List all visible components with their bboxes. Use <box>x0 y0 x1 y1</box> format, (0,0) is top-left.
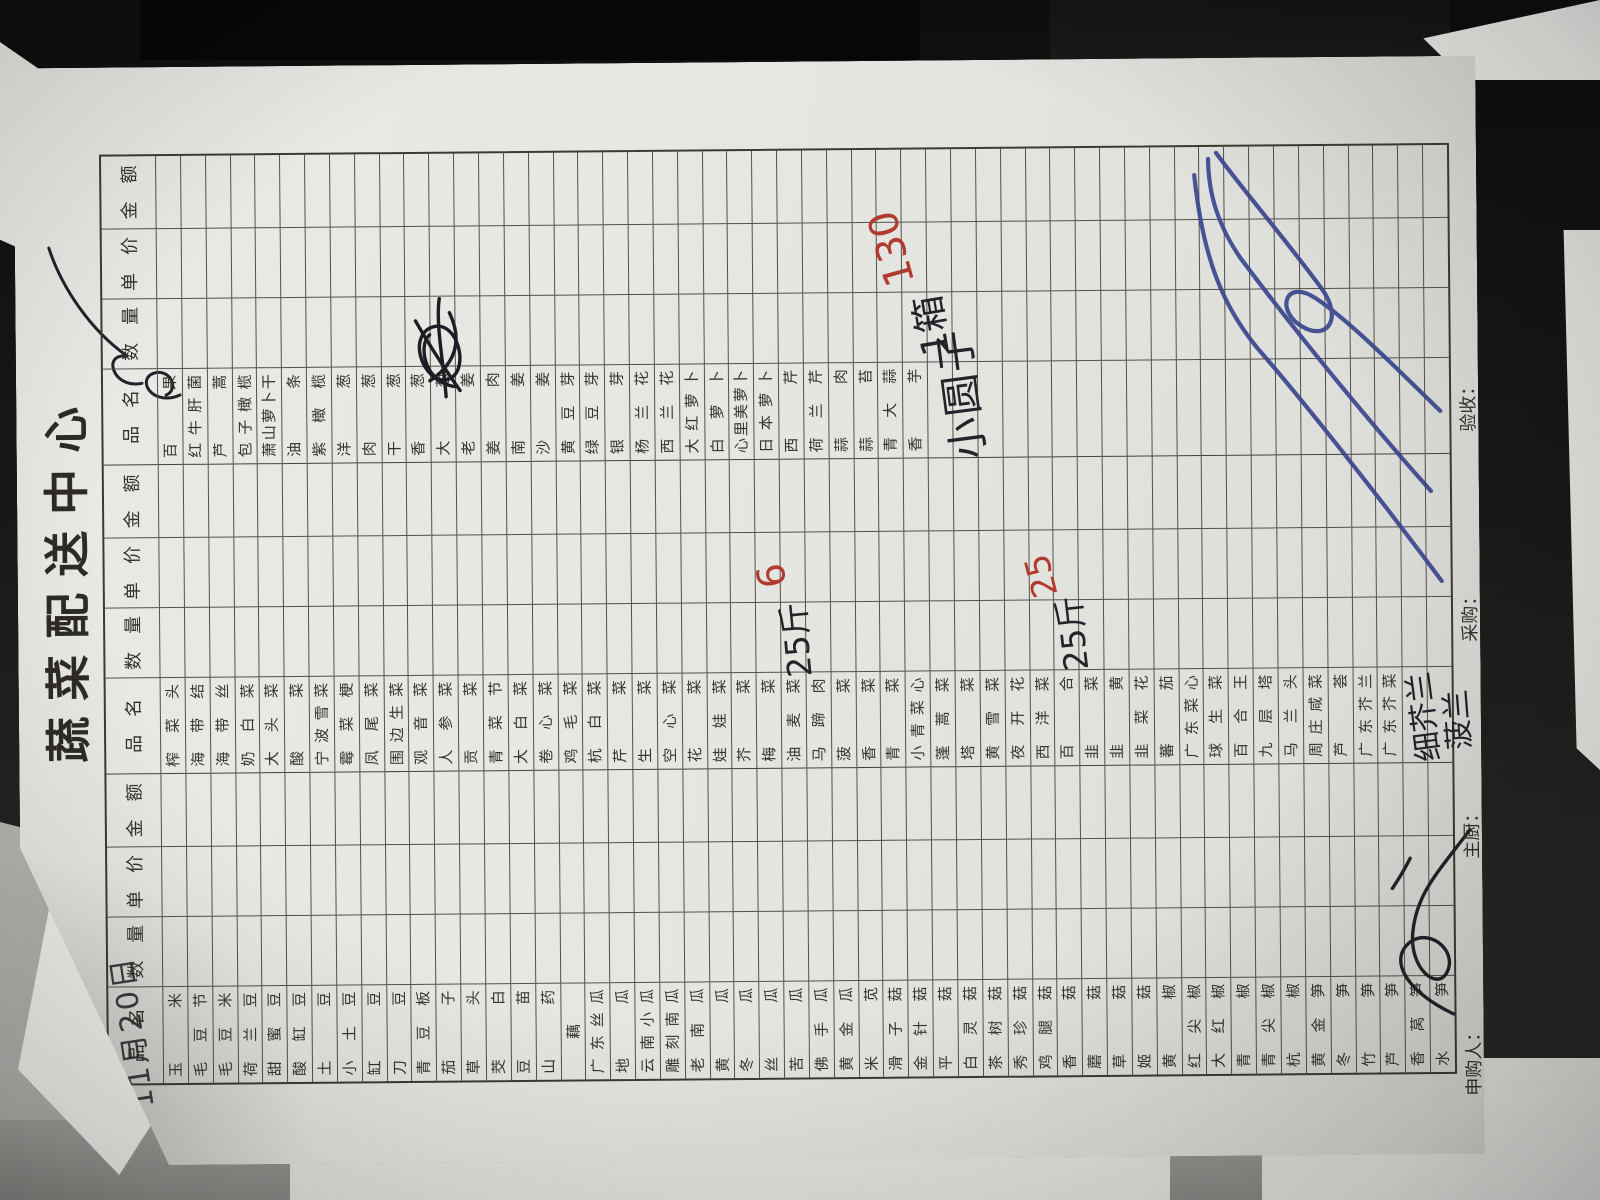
empty-value-cell <box>260 846 285 916</box>
column-header: 品 名 <box>106 678 161 774</box>
empty-value-cell <box>708 912 733 982</box>
empty-value-cell <box>608 770 633 843</box>
item-name-cell: 蓬蒿菜 <box>930 671 956 767</box>
empty-value-cell <box>554 295 579 365</box>
empty-value-cell <box>232 464 257 537</box>
paper-scrap <box>1548 230 1600 770</box>
item-name-cell: 肉葱 <box>356 367 382 463</box>
empty-value-cell <box>260 773 285 846</box>
empty-value-cell <box>678 294 703 364</box>
empty-value-cell <box>158 538 183 608</box>
empty-value-cell <box>385 915 410 985</box>
item-name-cell: 鸡腿菇 <box>1032 979 1058 1075</box>
empty-value-cell <box>359 772 384 845</box>
empty-value-cell <box>406 463 431 536</box>
empty-value-cell <box>659 913 684 983</box>
background-object <box>140 0 920 60</box>
empty-value-cell <box>925 149 950 222</box>
empty-value-cell <box>428 154 453 227</box>
empty-value-cell <box>257 464 282 537</box>
empty-value-cell <box>385 845 410 915</box>
item-name-cell: 大白菜 <box>507 675 533 771</box>
empty-value-cell <box>802 293 827 363</box>
empty-value-cell <box>553 225 578 295</box>
item-name-cell: 油条 <box>281 368 307 464</box>
item-name-cell: 杭白菜 <box>582 674 608 770</box>
empty-value-cell <box>556 604 581 674</box>
empty-value-cell <box>307 537 332 607</box>
item-name-cell: 青尖椒 <box>1255 977 1281 1073</box>
empty-value-cell <box>355 297 380 367</box>
column-header: 单 价 <box>104 538 159 608</box>
empty-value-cell <box>255 228 280 298</box>
empty-value-cell <box>210 773 235 846</box>
empty-value-cell <box>1025 148 1050 221</box>
item-name-cell: 雕刻南瓜 <box>659 983 685 1079</box>
empty-value-cell <box>581 604 606 674</box>
empty-value-cell <box>634 913 659 983</box>
empty-value-cell <box>280 228 305 298</box>
empty-value-cell <box>1127 529 1152 599</box>
item-name-cell: 菠菜 <box>830 672 856 768</box>
empty-value-cell <box>330 297 355 367</box>
item-name-cell: 九层塔 <box>1253 668 1279 764</box>
item-name-cell: 滑子菇 <box>883 981 909 1077</box>
item-name-cell: 冬瓜 <box>734 982 760 1078</box>
empty-value-cell <box>282 464 307 537</box>
empty-value-cell <box>432 606 457 676</box>
empty-value-cell <box>907 910 932 980</box>
empty-value-cell <box>627 152 652 225</box>
empty-value-cell <box>160 774 185 847</box>
empty-value-cell <box>807 841 832 911</box>
item-name-cell: 小青菜心 <box>905 671 931 767</box>
empty-name-cell <box>1101 361 1127 457</box>
item-name-cell: 藕 <box>560 983 586 1079</box>
item-name-cell: 贡菜 <box>458 675 484 771</box>
empty-value-cell <box>1179 765 1204 838</box>
empty-value-cell <box>305 228 330 298</box>
item-name-cell: 芥菜 <box>731 673 757 769</box>
handwritten-extra-qty: 1箱 <box>897 292 960 361</box>
empty-value-cell <box>559 843 584 913</box>
item-name-cell: 花菜 <box>681 673 707 769</box>
item-name-cell: 黄金瓜 <box>833 981 859 1077</box>
item-name-cell: 大红椒 <box>1206 978 1232 1074</box>
empty-value-cell <box>159 608 184 678</box>
empty-value-cell <box>954 601 979 671</box>
empty-value-cell <box>1125 290 1150 360</box>
empty-value-cell <box>304 155 329 228</box>
empty-value-cell <box>155 156 180 229</box>
item-name-cell: 人参菜 <box>433 676 459 772</box>
empty-value-cell <box>981 840 1006 910</box>
item-name-cell: 平菇 <box>932 980 958 1076</box>
empty-value-cell <box>258 537 283 607</box>
empty-value-cell <box>206 299 231 369</box>
item-name-cell: 空心菜 <box>656 674 682 770</box>
empty-value-cell <box>702 151 727 224</box>
empty-value-cell <box>261 916 286 986</box>
empty-value-cell <box>1102 530 1127 600</box>
empty-value-cell <box>236 916 261 986</box>
empty-value-cell <box>457 605 482 675</box>
empty-value-cell <box>435 915 460 985</box>
empty-value-cell <box>1329 907 1354 977</box>
empty-value-cell <box>1152 529 1177 599</box>
empty-value-cell <box>357 536 382 606</box>
empty-value-cell <box>603 225 628 295</box>
empty-value-cell <box>335 845 360 915</box>
empty-value-cell <box>577 152 602 225</box>
empty-value-cell <box>434 772 459 845</box>
item-name-cell: 红尖椒 <box>1181 978 1207 1074</box>
item-name-cell: 土豆 <box>311 986 337 1082</box>
empty-value-cell <box>1278 764 1303 837</box>
empty-value-cell <box>330 227 355 297</box>
empty-value-cell <box>1280 907 1305 977</box>
item-name-cell: 日本萝卜 <box>753 364 779 460</box>
empty-value-cell <box>1303 764 1328 837</box>
empty-value-cell <box>932 910 957 980</box>
empty-value-cell <box>777 294 802 364</box>
empty-value-cell <box>431 463 456 536</box>
empty-value-cell <box>506 535 531 605</box>
empty-value-cell <box>631 604 656 674</box>
handwritten-qty-2: 25斤 <box>1042 594 1098 674</box>
empty-value-cell <box>235 773 260 846</box>
item-name-cell: 凤尾菜 <box>358 676 384 772</box>
empty-value-cell <box>379 154 404 227</box>
empty-value-cell <box>1151 456 1176 529</box>
empty-value-cell <box>382 536 407 606</box>
item-name-cell: 韭黄 <box>1104 670 1130 766</box>
empty-value-cell <box>1027 457 1052 530</box>
item-name-cell: 芦蒿 <box>207 369 233 465</box>
empty-value-cell <box>1006 840 1031 910</box>
item-name-cell: 南姜 <box>505 366 531 462</box>
item-name-cell: 缸豆 <box>361 985 387 1081</box>
item-name-cell: 地瓜 <box>609 983 635 1079</box>
empty-value-cell <box>578 225 603 295</box>
empty-value-cell <box>978 458 1003 531</box>
empty-value-cell <box>855 602 880 672</box>
item-name-cell: 黄豆芽 <box>554 365 580 461</box>
item-name-cell: 米苋 <box>858 981 884 1077</box>
empty-value-cell <box>609 913 634 983</box>
empty-value-cell <box>931 840 956 910</box>
empty-value-cell <box>286 916 311 986</box>
empty-name-cell <box>1026 361 1052 457</box>
empty-value-cell <box>1180 838 1205 908</box>
item-name-cell: 马兰头 <box>1277 668 1303 764</box>
empty-value-cell <box>854 532 879 602</box>
empty-value-cell <box>801 150 826 223</box>
footer-label-chef: 主厨： <box>1458 805 1484 859</box>
empty-value-cell <box>559 913 584 983</box>
empty-value-cell <box>231 298 256 368</box>
empty-value-cell <box>831 768 856 841</box>
column-header: 数 量 <box>108 917 163 987</box>
empty-value-cell <box>409 845 434 915</box>
empty-value-cell <box>652 152 677 225</box>
empty-value-cell <box>978 531 1003 601</box>
empty-value-cell <box>479 296 504 366</box>
item-name-cell: 苦瓜 <box>783 981 809 1077</box>
empty-value-cell <box>185 774 210 847</box>
empty-value-cell <box>456 535 481 605</box>
empty-value-cell <box>1230 908 1255 978</box>
empty-value-cell <box>184 608 209 678</box>
item-name-cell: 青豆板 <box>411 985 437 1081</box>
item-name-cell: 奶白菜 <box>234 677 260 773</box>
empty-value-cell <box>752 294 777 364</box>
empty-value-cell <box>681 603 706 673</box>
item-name-cell: 杭椒 <box>1280 977 1306 1073</box>
empty-value-cell <box>705 533 730 603</box>
empty-value-cell <box>1030 766 1055 839</box>
empty-value-cell <box>233 537 258 607</box>
empty-value-cell <box>181 299 206 369</box>
item-name-cell: 黄金笋 <box>1305 977 1331 1073</box>
footer-label-receiver: 验收： <box>1454 378 1480 432</box>
empty-value-cell <box>356 463 381 536</box>
empty-value-cell <box>256 298 281 368</box>
empty-value-cell <box>804 459 829 532</box>
empty-value-cell <box>606 604 631 674</box>
empty-name-cell <box>1151 360 1177 456</box>
empty-value-cell <box>981 910 1006 980</box>
empty-value-cell <box>832 911 857 981</box>
item-name-cell: 酸缸豆 <box>286 986 312 1082</box>
empty-value-cell <box>1000 222 1025 292</box>
empty-value-cell <box>1130 838 1155 908</box>
empty-value-cell <box>633 843 658 913</box>
empty-value-cell <box>1153 599 1178 669</box>
item-name-cell: 心里美萝卜 <box>728 364 754 460</box>
empty-value-cell <box>928 458 953 531</box>
empty-value-cell <box>782 842 807 912</box>
item-name-cell: 百果 <box>157 369 183 465</box>
empty-value-cell <box>509 844 534 914</box>
empty-value-cell <box>879 602 904 672</box>
empty-value-cell <box>726 151 751 224</box>
empty-value-cell <box>580 461 605 534</box>
item-name-cell: 西洋菜 <box>1029 670 1055 766</box>
empty-value-cell <box>881 768 906 841</box>
footer-label-requester: 申购人： <box>1460 1024 1487 1096</box>
empty-value-cell <box>826 223 851 293</box>
empty-value-cell <box>1000 149 1025 222</box>
empty-value-cell <box>1055 766 1080 839</box>
empty-value-cell <box>727 224 752 294</box>
item-name-cell: 西兰花 <box>654 365 680 461</box>
item-name-cell: 韭菜花 <box>1128 669 1154 765</box>
empty-value-cell <box>429 227 454 297</box>
item-name-cell: 广东芥兰 <box>1352 668 1378 764</box>
empty-value-cell <box>307 464 332 537</box>
empty-value-cell <box>1100 221 1125 291</box>
empty-value-cell <box>856 768 881 841</box>
empty-value-cell <box>752 224 777 294</box>
empty-value-cell <box>928 531 953 601</box>
item-name-cell: 香芋 <box>902 362 928 458</box>
empty-value-cell <box>534 844 559 914</box>
empty-value-cell <box>1329 837 1354 907</box>
empty-value-cell <box>979 601 1004 671</box>
empty-value-cell <box>334 772 359 845</box>
item-name-cell: 刀豆 <box>386 985 412 1081</box>
empty-value-cell <box>1155 838 1180 908</box>
empty-value-cell <box>532 605 557 675</box>
empty-value-cell <box>653 295 678 365</box>
empty-value-cell <box>583 770 608 843</box>
item-name-cell: 玉米 <box>162 987 188 1083</box>
item-name-cell: 丝瓜 <box>758 982 784 1078</box>
empty-value-cell <box>285 773 310 846</box>
empty-value-cell <box>956 840 981 910</box>
empty-value-cell <box>332 463 357 536</box>
empty-value-cell <box>857 841 882 911</box>
empty-value-cell <box>906 767 931 840</box>
item-name-cell: 香菜 <box>855 672 881 768</box>
empty-value-cell <box>205 229 230 299</box>
empty-value-cell <box>552 152 577 225</box>
empty-value-cell <box>1128 599 1153 669</box>
empty-value-cell <box>479 226 504 296</box>
item-name-cell: 海带结 <box>184 678 210 774</box>
order-form-paper: 蔬菜配送中心 11月20日 品 名数 量单 价金 额品 名数 量单 价金 额品 … <box>13 56 1485 1167</box>
empty-value-cell <box>162 917 187 987</box>
column-header: 单 价 <box>107 847 162 917</box>
empty-value-cell <box>857 911 882 981</box>
empty-value-cell <box>829 532 854 602</box>
item-name-cell: 佛手瓜 <box>808 981 834 1077</box>
empty-value-cell <box>757 769 782 842</box>
empty-value-cell <box>953 531 978 601</box>
empty-value-cell <box>509 914 534 984</box>
empty-value-cell <box>1131 908 1156 978</box>
empty-value-cell <box>503 153 528 226</box>
item-name-cell: 蒜苔 <box>852 363 878 459</box>
empty-value-cell <box>1205 908 1230 978</box>
empty-value-cell <box>354 154 379 227</box>
item-name-cell: 洋葱 <box>331 367 357 463</box>
empty-value-cell <box>704 460 729 533</box>
empty-value-cell <box>758 912 783 982</box>
empty-value-cell <box>1031 839 1056 909</box>
empty-value-cell <box>950 149 975 222</box>
item-name-cell: 老南瓜 <box>684 982 710 1078</box>
item-name-cell: 茶树菇 <box>982 980 1008 1076</box>
item-name-cell: 金针菇 <box>908 980 934 1076</box>
column-header: 金 额 <box>104 465 159 538</box>
empty-value-cell <box>1080 766 1105 839</box>
empty-value-cell <box>283 607 308 677</box>
empty-value-cell <box>606 534 631 604</box>
empty-value-cell <box>783 912 808 982</box>
empty-name-cell <box>1002 362 1028 458</box>
empty-value-cell <box>702 224 727 294</box>
empty-value-cell <box>531 535 556 605</box>
empty-value-cell <box>485 914 510 984</box>
empty-value-cell <box>556 534 581 604</box>
empty-value-cell <box>183 538 208 608</box>
empty-value-cell <box>1279 837 1304 907</box>
empty-value-cell <box>655 461 680 534</box>
item-name-cell: 姬菇 <box>1131 978 1157 1074</box>
empty-value-cell <box>608 843 633 913</box>
empty-value-cell <box>283 537 308 607</box>
item-name-cell: 茭白 <box>485 984 511 1080</box>
empty-value-cell <box>808 911 833 981</box>
item-name-cell: 毛豆米 <box>212 986 238 1082</box>
empty-value-cell <box>879 532 904 602</box>
empty-value-cell <box>951 222 976 292</box>
item-name-cell: 马蹄肉 <box>805 672 831 768</box>
empty-value-cell <box>533 771 558 844</box>
empty-value-cell <box>1074 148 1099 221</box>
empty-value-cell <box>432 536 457 606</box>
item-name-cell: 百合王 <box>1228 669 1254 765</box>
empty-value-cell <box>655 534 680 604</box>
empty-value-cell <box>754 460 779 533</box>
empty-value-cell <box>481 535 506 605</box>
empty-value-cell <box>180 156 205 229</box>
empty-value-cell <box>1304 907 1329 977</box>
empty-value-cell <box>507 605 532 675</box>
item-name-cell: 蕃茄 <box>1153 669 1179 765</box>
item-name-cell: 红牛肝菌 <box>182 369 208 465</box>
empty-value-cell <box>680 533 705 603</box>
item-name-cell: 广东菜心 <box>1178 669 1204 765</box>
empty-name-cell <box>1051 361 1077 457</box>
empty-value-cell <box>381 463 406 536</box>
empty-value-cell <box>233 607 258 677</box>
empty-value-cell <box>308 607 333 677</box>
empty-value-cell <box>703 294 728 364</box>
empty-value-cell <box>630 534 655 604</box>
empty-value-cell <box>781 769 806 842</box>
empty-value-cell <box>333 606 358 676</box>
empty-value-cell <box>379 227 404 297</box>
item-name-cell: 酸菜 <box>284 677 310 773</box>
empty-value-cell <box>827 293 852 363</box>
column-header: 金 额 <box>106 774 161 847</box>
empty-value-cell <box>383 606 408 676</box>
empty-value-cell <box>1026 291 1051 361</box>
empty-value-cell <box>628 295 653 365</box>
empty-value-cell <box>180 229 205 299</box>
empty-value-cell <box>1001 292 1026 362</box>
empty-value-cell <box>931 767 956 840</box>
empty-value-cell <box>1255 907 1280 977</box>
empty-value-cell <box>454 226 479 296</box>
empty-value-cell <box>534 914 559 984</box>
empty-value-cell <box>305 298 330 368</box>
empty-value-cell <box>156 229 181 299</box>
item-name-cell: 包子橄榄 <box>231 368 257 464</box>
item-name-cell: 秀珍菇 <box>1007 980 1033 1076</box>
empty-value-cell <box>677 224 702 294</box>
empty-value-cell <box>1104 766 1129 839</box>
empty-value-cell <box>456 462 481 535</box>
empty-value-cell <box>1127 456 1152 529</box>
empty-value-cell <box>158 465 183 538</box>
item-name-cell: 娃娃菜 <box>706 673 732 769</box>
empty-value-cell <box>285 846 310 916</box>
empty-value-cell <box>508 771 533 844</box>
